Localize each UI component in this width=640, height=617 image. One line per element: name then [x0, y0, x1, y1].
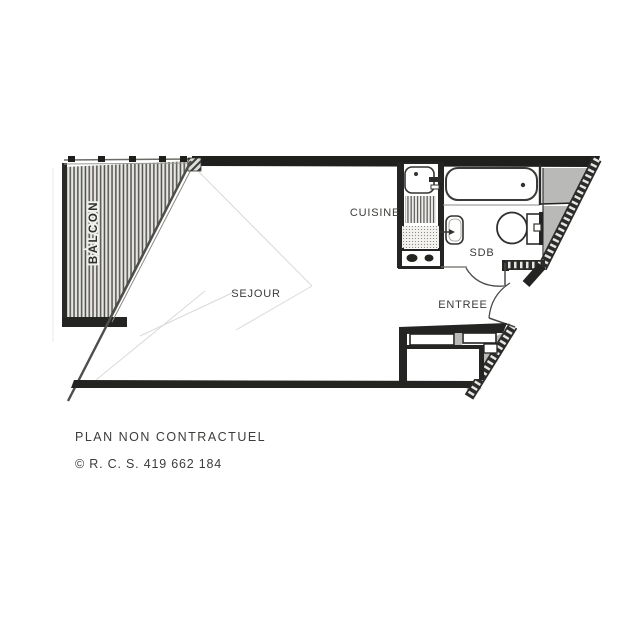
- closet-shelf-2: [463, 333, 496, 343]
- sink-faucet-handle: [431, 185, 439, 189]
- balcony-bottom-wall: [62, 317, 127, 327]
- entry-closet: [399, 323, 507, 383]
- closet-left-wall: [399, 327, 407, 383]
- balcony: BALCON: [62, 156, 194, 327]
- burner-left: [407, 254, 418, 262]
- footer: PLAN NON CONTRACTUEL © R. C. S. 419 662 …: [75, 430, 266, 471]
- sink-drain: [414, 172, 418, 176]
- counter-stipple: [402, 226, 439, 248]
- doors: [441, 263, 515, 327]
- sdb-door-arc: [466, 268, 504, 286]
- page: BALCON: [0, 0, 640, 617]
- closet-divider-block: [455, 333, 462, 345]
- closet-mid-wall: [407, 345, 487, 349]
- south-wall: [71, 380, 481, 388]
- plan-disclaimer: PLAN NON CONTRACTUEL: [75, 430, 266, 444]
- room-label-balcon: BALCON: [88, 200, 100, 264]
- washbasin: [446, 216, 463, 244]
- sink-faucet: [429, 177, 442, 182]
- closet-compartment: [407, 349, 481, 379]
- closet-right-wall: [479, 349, 484, 380]
- floor-plan: BALCON: [0, 0, 640, 617]
- closet-notch: [484, 344, 497, 353]
- toilet-valve: [534, 224, 541, 231]
- toilet-bowl: [497, 213, 527, 244]
- bathtub-drain: [521, 183, 525, 187]
- copyright-text: © R. C. S. 419 662 184: [75, 457, 266, 471]
- balcony-railing-line: [64, 159, 192, 160]
- entry-door-arc: [489, 283, 510, 318]
- draining-board: [405, 196, 436, 223]
- room-label-sejour: SEJOUR: [231, 288, 280, 300]
- room-label-entree: ENTREE: [438, 299, 487, 311]
- burner-right: [425, 255, 434, 262]
- closet-shelf-1: [410, 334, 454, 345]
- balcony-deck-hatch: [64, 161, 191, 320]
- room-label-cuisine: CUISINE: [350, 207, 400, 219]
- bathroom: [439, 164, 543, 245]
- room-label-sdb: SDB: [469, 247, 494, 259]
- balcony-left-wall: [62, 163, 67, 327]
- kitchen-unit: [397, 163, 444, 269]
